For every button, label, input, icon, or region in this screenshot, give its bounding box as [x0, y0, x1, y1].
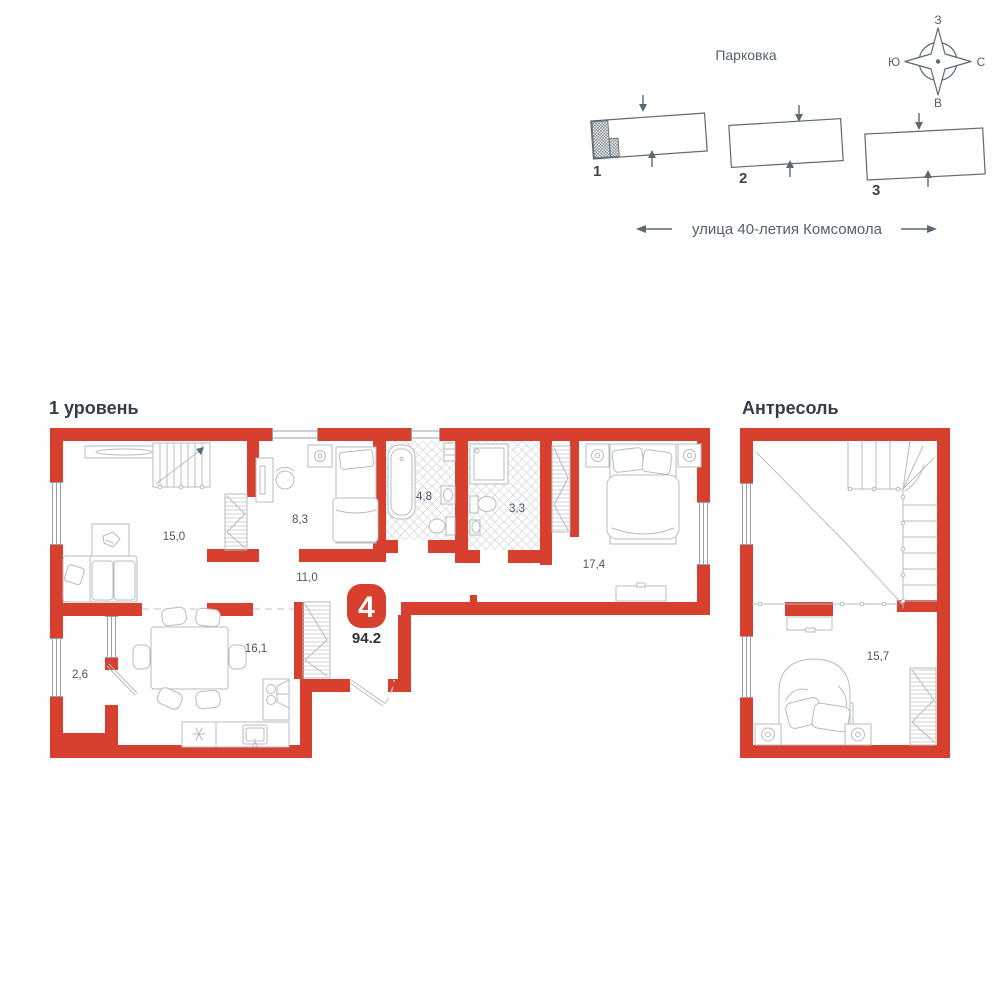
site-building-2: 2	[729, 105, 843, 187]
tv-stand	[616, 583, 666, 601]
balcony-window-icon	[105, 616, 118, 658]
kitchen-counter	[182, 722, 289, 747]
mezzanine-desk	[787, 617, 832, 632]
room-label-bathroom: 4,8	[416, 491, 432, 503]
window-icon	[50, 638, 63, 697]
total-area: 94.2	[352, 630, 381, 647]
room-label-bedroom2: 8,3	[292, 514, 308, 526]
sink	[470, 520, 480, 535]
sofa	[63, 556, 137, 602]
site-plan: Парковка З Ю С В 1	[591, 13, 986, 238]
living-room-furniture	[63, 443, 210, 602]
room-label-kitchen: 16,1	[245, 643, 267, 655]
shelf	[444, 443, 455, 461]
toilet	[470, 496, 496, 513]
building-2-number: 2	[739, 170, 747, 187]
nightstand-lamp-icon	[678, 444, 701, 467]
stairs-up	[153, 443, 210, 489]
hallway-wardrobe	[303, 602, 330, 678]
compass-east-label: В	[934, 96, 942, 110]
single-bed	[333, 447, 378, 543]
mezzanine-bed	[755, 659, 871, 745]
tv-console	[85, 446, 163, 458]
apartment-badge: 4 94.2	[347, 584, 386, 647]
level1-plan: 1 уровень	[49, 398, 710, 758]
room-label-living: 15,0	[163, 531, 185, 543]
bathtub	[388, 445, 415, 519]
window-icon	[411, 428, 440, 441]
building-1-highlight	[592, 121, 610, 158]
window-icon	[50, 482, 63, 545]
desk-and-chair	[256, 458, 294, 502]
window-icon	[272, 428, 318, 441]
double-bed	[607, 444, 679, 544]
wall-lamp-icon	[308, 445, 332, 467]
room-label-master: 17,4	[583, 559, 606, 571]
plan-canvas: Парковка З Ю С В 1	[0, 0, 1000, 1000]
nightstand-lamp-icon	[845, 724, 871, 745]
building-3-number: 3	[872, 182, 880, 199]
room-label-mezzanine: 15,7	[867, 651, 889, 663]
window-icon	[740, 636, 753, 698]
street-label-group: улица 40-летия Комсомола	[636, 221, 937, 238]
compass-south-label: Ю	[888, 55, 900, 69]
entrance-door	[350, 680, 394, 706]
mezzanine-wardrobe	[910, 668, 936, 745]
room-label-balcony: 2,6	[72, 669, 88, 681]
wardrobe	[225, 494, 247, 550]
sink	[441, 486, 455, 504]
nightstand-lamp-icon	[586, 444, 609, 467]
mezzanine-title: Антресоль	[742, 398, 839, 418]
site-building-3: 3	[865, 113, 985, 199]
closet	[552, 446, 570, 532]
kitchen-furniture	[133, 606, 289, 747]
dining-table	[133, 606, 246, 711]
window-icon	[740, 483, 753, 545]
mezzanine-stairs	[756, 441, 937, 608]
floor-plan-page: Парковка З Ю С В 1	[0, 0, 1000, 1000]
stove	[263, 679, 289, 720]
shower-tray	[470, 444, 508, 484]
compass-west-label: З	[934, 13, 941, 27]
void-edge-line	[756, 452, 902, 604]
street-label: улица 40-летия Комсомола	[692, 221, 883, 238]
parking-label: Парковка	[715, 47, 777, 63]
kitchen-sink	[243, 725, 267, 747]
window-icon	[697, 502, 710, 565]
level1-title: 1 уровень	[49, 398, 139, 418]
compass-north-label: С	[977, 55, 986, 69]
mezzanine-plan: Антресоль	[740, 398, 950, 758]
building-1-number: 1	[593, 163, 601, 180]
room-label-hall: 11,0	[296, 572, 318, 584]
compass-icon: З Ю С В	[888, 13, 986, 110]
rooms-count: 4	[358, 591, 375, 624]
room-label-shower: 3,3	[509, 503, 525, 515]
site-building-1: 1	[591, 95, 707, 180]
nightstand-lamp-icon	[755, 724, 781, 745]
